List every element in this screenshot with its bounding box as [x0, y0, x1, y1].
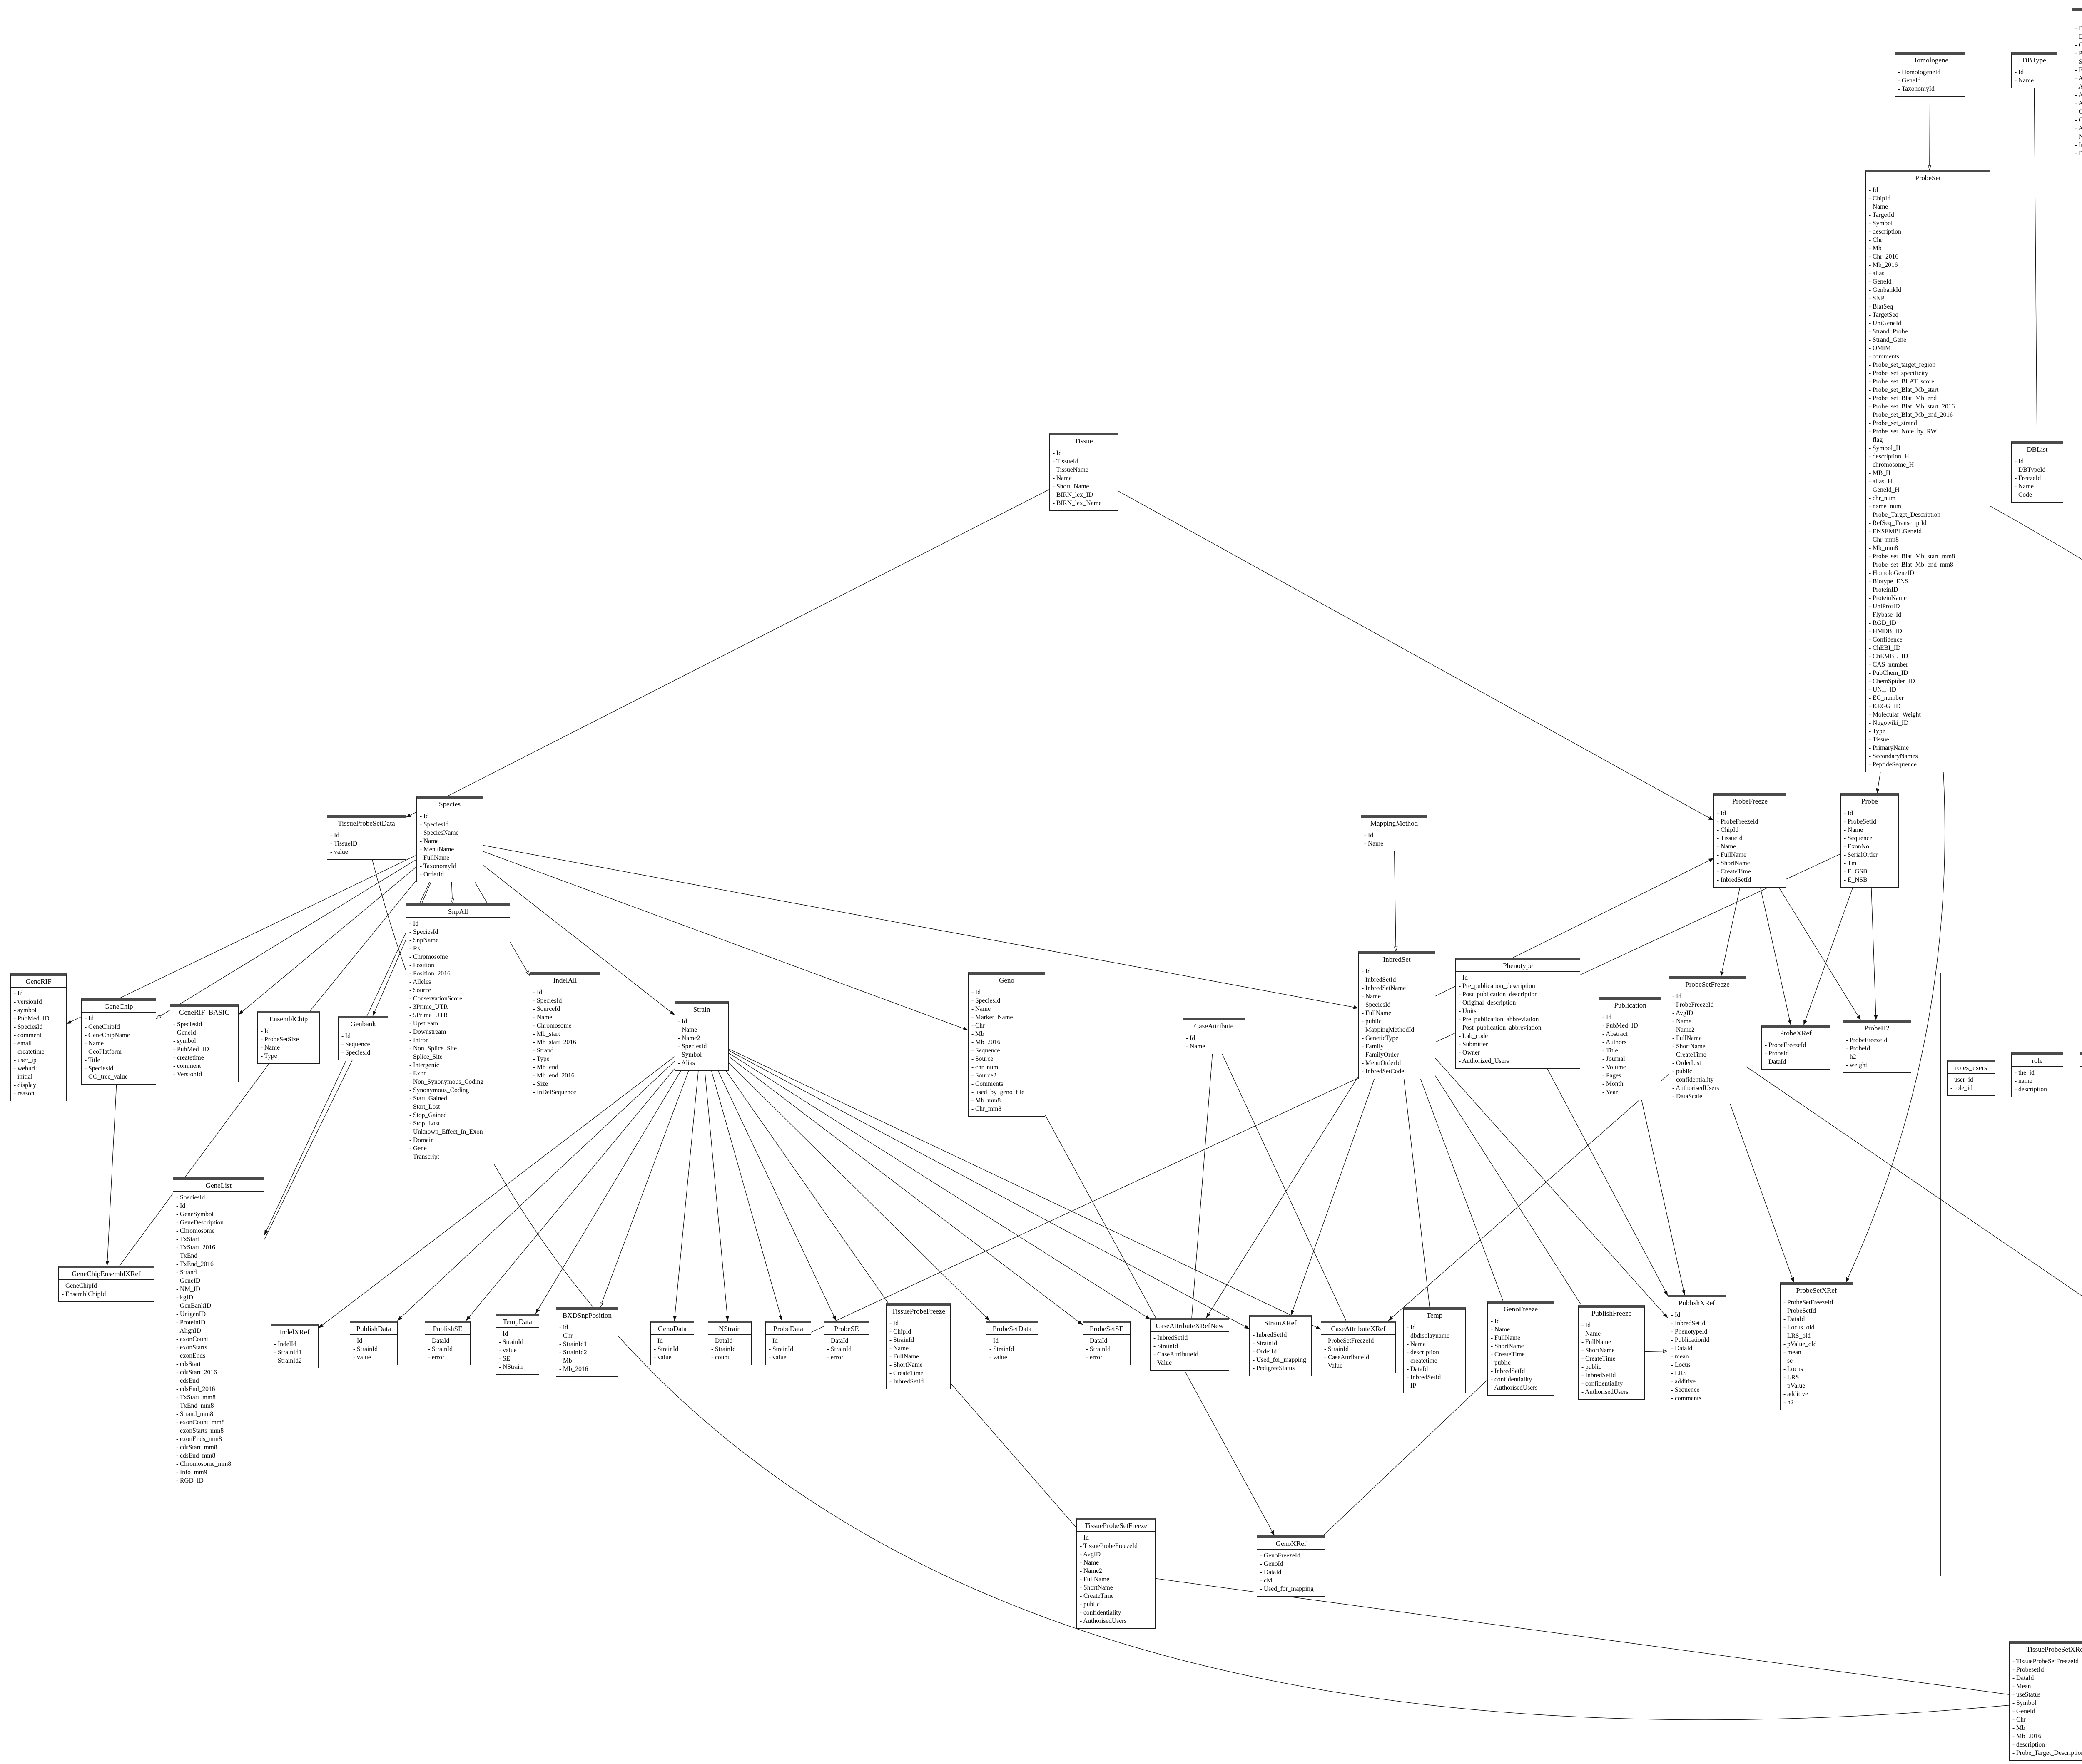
table-DBList: DBList- Id- DBTypeId- FreezeId- Name- Co…: [2011, 441, 2063, 503]
field-list: - InbredSetId- StrainId- CaseAttributeId…: [1151, 1332, 1229, 1370]
table-roles_users: roles_users- user_id- role_id: [1947, 1060, 1995, 1096]
field-row: - FullName: [420, 854, 481, 862]
field-row: - Info_mm9: [176, 1468, 262, 1477]
field-row: - SpeciesId: [14, 1023, 65, 1031]
field-list: - Id- dbdisplayname- Name- description- …: [1404, 1321, 1465, 1393]
field-row: - StrainId: [989, 1345, 1036, 1353]
field-row: - OrderList: [1672, 1059, 1744, 1067]
field-row: - Probe_set_Blat_Mb_start_2016: [1869, 403, 1988, 411]
field-row: - Intergenic: [409, 1061, 508, 1070]
field-row: - confidentiality: [1080, 1609, 1153, 1617]
field-list: - Id- StrainId- value: [766, 1335, 811, 1365]
field-row: - Locus: [1783, 1365, 1851, 1373]
field-row: - IndelId: [274, 1340, 316, 1349]
field-list: - Id- Name- FullName- ShortName- CreateT…: [1579, 1319, 1644, 1399]
field-row: - Id: [261, 1027, 318, 1035]
edge-Probe-ProbeXRef: [1804, 888, 1853, 1025]
field-row: - StrainId: [711, 1345, 750, 1353]
field-row: - cdsEnd_2016: [176, 1385, 262, 1393]
field-row: - Name: [889, 1344, 949, 1353]
field-row: - GeneId: [1869, 278, 1988, 286]
field-row: - weburl: [14, 1065, 65, 1073]
edge-ProbeSet-Probe: [1877, 772, 1880, 793]
field-row: - Mb_end: [533, 1063, 598, 1072]
field-row: - Gene: [409, 1144, 508, 1153]
table-Geno: Geno- Id- SpeciesId- Name- Marker_Name- …: [968, 972, 1045, 1117]
field-row: - Name: [1581, 1330, 1643, 1338]
field-row: - Month: [1602, 1080, 1659, 1088]
table-MappingMethod: MappingMethod- Id- Name: [1361, 815, 1427, 851]
field-row: - id: [559, 1324, 616, 1332]
table-title: ProbeXRef: [1762, 1028, 1830, 1039]
table-Probe: Probe- Id- ProbeSetId- Name- Sequence- E…: [1840, 793, 1899, 888]
field-row: - Name: [420, 837, 481, 846]
field-row: - StrainId: [1253, 1339, 1310, 1348]
edge-InbredSet-Temp: [1404, 1079, 1430, 1307]
field-row: - count: [711, 1353, 750, 1362]
field-row: - Id: [971, 988, 1043, 997]
field-row: - Nugowiki_ID: [1869, 719, 1988, 727]
field-row: - CAS_number: [1869, 661, 1988, 669]
table-GeneList: GeneList- SpeciesId- Id- GeneSymbol- Gen…: [173, 1177, 264, 1488]
field-row: - LRS: [1783, 1373, 1851, 1382]
field-row: - Name: [1844, 826, 1897, 834]
table-title: Geno: [969, 975, 1045, 986]
field-row: - Size: [533, 1080, 598, 1088]
table-title: ProbeFreeze: [1714, 796, 1786, 807]
field-row: - StrainId: [654, 1345, 692, 1353]
field-row: - DatasetName: [2075, 33, 2082, 41]
table-title: StrainXRef: [1250, 1317, 1311, 1329]
field-row: - TxStart_2016: [176, 1244, 262, 1252]
field-list: - Id- GeneChipId- GeneChipName- Name- Ge…: [82, 1013, 156, 1084]
table-title: ProbeH2: [1843, 1023, 1911, 1034]
field-row: - InbredSetId: [1362, 976, 1433, 984]
table-ProbeFreeze: ProbeFreeze- Id- ProbeFreezeId- ChipId- …: [1713, 793, 1786, 888]
table-title: PublishXRef: [1668, 1297, 1726, 1309]
field-row: - InvestigatorId: [2075, 141, 2082, 149]
field-row: - UniGeneId: [1869, 319, 1988, 328]
field-row: - ChemSpider_ID: [1869, 677, 1988, 686]
field-row: - ShortName: [1672, 1042, 1744, 1051]
field-row: - GeneChipId: [85, 1023, 154, 1031]
field-row: - SecondaryNames: [1869, 752, 1988, 761]
field-list: - Id- InbredSetId- InbredSetName- Name- …: [1359, 965, 1435, 1079]
field-row: - ShortName: [1491, 1342, 1552, 1351]
field-row: - PeptideSequence: [1869, 761, 1988, 769]
field-row: - public: [1080, 1600, 1153, 1609]
field-row: - AvgID: [1672, 1009, 1744, 1018]
field-row: - Stop_Gained: [409, 1111, 508, 1120]
field-row: - Journal: [1602, 1055, 1659, 1063]
field-row: - TissueID: [330, 840, 404, 848]
field-row: - Chromosome: [533, 1022, 598, 1030]
field-row: - user_id: [1950, 1076, 1993, 1084]
table-ProbeSetData: ProbeSetData- Id- StrainId- value: [986, 1321, 1038, 1365]
field-row: - InbredSetId: [1153, 1334, 1227, 1342]
field-row: - Pre_publication_description: [1459, 982, 1578, 990]
table-title: EnsemblChip: [258, 1013, 319, 1025]
field-row: - DataScale: [1672, 1092, 1744, 1101]
field-row: - ShortName: [889, 1361, 949, 1369]
field-row: - DataId: [1783, 1315, 1851, 1324]
field-row: - flag: [1869, 436, 1988, 444]
table-Publication: Publication- Id- PubMed_ID- Abstract- Au…: [1599, 997, 1661, 1100]
field-row: - ProteinID: [176, 1319, 262, 1327]
field-row: - Locus: [1671, 1361, 1724, 1369]
field-row: - Id: [499, 1330, 537, 1338]
field-row: - mean: [1783, 1349, 1851, 1357]
table-ProbeH2: ProbeH2- ProbeFreezeId- ProbeId- h2- wei…: [1843, 1020, 1911, 1073]
field-row: - Start_Lost: [409, 1103, 508, 1111]
field-row: - error: [428, 1353, 468, 1362]
field-row: - CreateTime: [1717, 868, 1784, 876]
table-title: TissueProbeSetFreeze: [1077, 1520, 1155, 1532]
field-row: - h2: [1783, 1398, 1851, 1407]
field-row: - Probe_Target_Description: [2012, 1749, 2082, 1757]
field-row: - GeneticType: [1362, 1034, 1433, 1042]
field-row: - Mb_mm8: [1869, 544, 1988, 552]
table-TissueProbeSetXRef: TissueProbeSetXRef- TissueProbeSetFreeze…: [2009, 1641, 2082, 1761]
edge-InbredSet-StrainXRef: [1291, 1079, 1374, 1315]
field-row: - ProbeFreezeId: [1765, 1041, 1828, 1050]
field-row: - Mb_2016: [971, 1038, 1043, 1047]
field-row: - Probe_set_BLAT_score: [1869, 378, 1988, 386]
field-row: - Mb_start: [533, 1030, 598, 1038]
field-row: - the_id: [2015, 1069, 2061, 1077]
field-row: - Name: [1364, 840, 1425, 848]
field-row: - GeneId: [2012, 1707, 2082, 1716]
edge-Tissue-TissueProbeSetData: [406, 490, 1049, 818]
field-row: - Family: [1362, 1042, 1433, 1051]
field-row: - Id: [409, 920, 508, 928]
field-list: - Id- InbredSetId- PhenotypeId- Publicat…: [1668, 1309, 1726, 1406]
field-row: - Name: [1869, 203, 1988, 211]
field-row: - TxEnd: [176, 1252, 262, 1260]
field-row: - SpeciesId: [176, 1194, 262, 1202]
field-list: - TableField- Foreign_Key- Annotation: [2080, 1067, 2082, 1097]
edge-ProbeFreeze-ProbeXRef: [1761, 888, 1791, 1025]
field-list: - user_id- role_id: [1948, 1074, 1995, 1095]
table-title: DBType: [2012, 55, 2057, 66]
table-title: GeneRIF_BASIC: [170, 1007, 238, 1018]
field-row: - HMDB_ID: [1869, 627, 1988, 636]
field-row: - Id: [769, 1337, 809, 1345]
field-row: - MB_H: [1869, 469, 1988, 478]
field-row: - useStatus: [2012, 1691, 2082, 1699]
field-list: - Id- StrainId- value: [986, 1335, 1038, 1365]
field-row: - GeneId: [173, 1029, 237, 1037]
field-row: - InbredSetId: [1407, 1373, 1464, 1382]
field-row: - StrainId: [1086, 1345, 1128, 1353]
field-row: - Chr: [559, 1332, 616, 1340]
field-row: - Probe_set_Blat_Mb_end_2016: [1869, 411, 1988, 419]
field-row: - Name: [1407, 1340, 1464, 1349]
table-title: TissueProbeFreeze: [887, 1306, 950, 1317]
field-row: - Chr: [971, 1022, 1043, 1030]
field-row: - versionId: [14, 998, 65, 1006]
field-row: - Type: [533, 1055, 598, 1063]
field-row: - Original_description: [1459, 999, 1578, 1007]
field-row: - symbol: [173, 1037, 237, 1045]
field-row: - PrimaryName: [1869, 744, 1988, 752]
field-row: - Id: [85, 1015, 154, 1023]
field-row: - TissueProbeSetFreezeId: [2012, 1657, 2082, 1666]
field-row: - name_num: [1869, 503, 1988, 511]
field-row: - Id: [1581, 1321, 1643, 1330]
field-row: - ProbeSetSize: [261, 1035, 318, 1044]
table-ProbeSet: ProbeSet- Id- ChipId- Name- TargetId- Sy…: [1865, 170, 1990, 772]
field-row: - Id: [1491, 1317, 1552, 1326]
field-row: - public: [1491, 1359, 1552, 1367]
table-title: Phenotype: [1456, 960, 1580, 972]
field-row: - exonCount_mm8: [176, 1418, 262, 1427]
field-row: - reason: [14, 1090, 65, 1098]
field-row: - DataId: [1407, 1365, 1464, 1373]
field-row: - alias: [1869, 269, 1988, 278]
field-row: - E_GSB: [1844, 868, 1897, 876]
field-row: - Id: [14, 990, 65, 998]
field-row: - Id: [2015, 68, 2055, 77]
field-row: - additive: [1671, 1378, 1724, 1386]
table-title: ProbeSetData: [986, 1323, 1038, 1335]
field-row: - Authorized_Users: [1459, 1057, 1578, 1065]
field-row: - ChipId: [1869, 194, 1988, 203]
field-list: - Id- PubMed_ID- Abstract- Authors- Titl…: [1599, 1011, 1661, 1100]
field-row: - GeneChipId: [62, 1282, 152, 1290]
field-list: - Id- Name: [2012, 66, 2057, 88]
field-row: - Tissue: [1869, 736, 1988, 744]
table-TissueProbeSetFreeze: TissueProbeSetFreeze- Id- TissueProbeFre…: [1076, 1518, 1156, 1629]
field-row: - public: [1362, 1018, 1433, 1026]
field-row: - Symbol: [678, 1051, 727, 1059]
field-row: - ProbesetId: [2012, 1666, 2082, 1674]
table-title: PublishSE: [425, 1323, 470, 1335]
field-row: - Name: [533, 1013, 598, 1022]
field-row: - value: [769, 1353, 809, 1362]
field-row: - createtime: [173, 1054, 237, 1062]
field-row: - mean: [1671, 1353, 1724, 1361]
field-row: - Value: [1324, 1362, 1394, 1370]
field-row: - Id: [654, 1337, 692, 1345]
field-row: - LRS_old: [1783, 1332, 1851, 1340]
field-row: - FullName: [1717, 851, 1784, 859]
edge-Strain-TissueProbeFreeze: [726, 1071, 888, 1303]
field-row: - DataId: [2012, 1674, 2082, 1682]
field-row: - Tm: [1844, 859, 1897, 868]
field-row: - Notes: [2075, 133, 2082, 141]
edge-Strain-ProbeSetData: [729, 1063, 989, 1321]
table-ProbeSetSE: ProbeSetSE- DataId- StrainId- error: [1083, 1321, 1131, 1365]
field-row: - EC_number: [1869, 694, 1988, 702]
table-GenoFreeze: GenoFreeze- Id- Name- FullName- ShortNam…: [1487, 1301, 1554, 1396]
field-row: - HomoloGeneID: [1869, 569, 1988, 577]
edge-Tissue-ProbeFreeze: [1118, 491, 1713, 820]
field-row: - Molecular_Weight: [1869, 711, 1988, 719]
field-row: - cdsStart_2016: [176, 1368, 262, 1377]
edge-DBType-DBList: [2034, 88, 2037, 441]
field-row: - EnsemblChipId: [62, 1290, 152, 1299]
field-row: - SpeciesId: [85, 1065, 154, 1073]
field-list: - Id- SpeciesId- SourceId- Name- Chromos…: [530, 986, 600, 1100]
field-row: - Citation: [2075, 116, 2082, 124]
field-list: - DataId- StrainId- error: [824, 1335, 869, 1365]
field-list: - DataId- StrainId- count: [708, 1335, 751, 1365]
field-row: - Id: [341, 1032, 386, 1040]
edge-Strain-ProbeSE: [718, 1071, 836, 1321]
field-row: - GeneId_H: [1869, 486, 1988, 494]
field-row: - Symbol: [1869, 219, 1988, 228]
table-title: PublishData: [350, 1323, 397, 1335]
edge-ProbeSetFreeze-ProbeSetXRef: [1730, 1104, 1794, 1282]
field-row: - Authors: [1602, 1038, 1659, 1047]
field-row: - Units: [1459, 1007, 1578, 1015]
field-list: - Id- StrainId- value- SE- NStrain: [496, 1328, 539, 1374]
edge-Publication-PublishXRef: [1641, 1100, 1684, 1295]
table-CaseAttributeXRefNew: CaseAttributeXRefNew- InbredSetId- Strai…: [1150, 1318, 1229, 1371]
field-row: - TaxonomyId: [420, 862, 481, 871]
field-list: - Id- Sequence- SpeciesId: [339, 1030, 388, 1060]
field-row: - error: [827, 1353, 867, 1362]
field-row: - Sequence: [971, 1047, 1043, 1055]
field-row: - Position_2016: [409, 970, 508, 978]
field-list: - DataId- StrainId- error: [1083, 1335, 1130, 1365]
field-row: - StrainId1: [274, 1349, 316, 1357]
field-row: - exonEnds: [176, 1352, 262, 1360]
field-list: - GeneChipId- EnsemblChipId: [59, 1280, 154, 1301]
field-row: - Probe_set_specificity: [1869, 369, 1988, 378]
field-list: - Id- SpeciesId- SpeciesName- Name- Menu…: [417, 810, 483, 882]
table-BXDSnpPosition: BXDSnpPosition- id- Chr- StrainId1- Stra…: [556, 1307, 618, 1377]
field-row: - Id: [1602, 1013, 1659, 1022]
edge-ProbeSetFreeze-CaseAttributeXRef: [1388, 1074, 1669, 1321]
field-row: - PhenotypeId: [1671, 1328, 1724, 1336]
edge-InbredSet-GenoFreeze: [1421, 1079, 1503, 1301]
field-row: - StrainId: [889, 1336, 949, 1344]
field-row: - Id: [1717, 809, 1784, 818]
field-row: - Marker_Name: [971, 1013, 1043, 1022]
edge-Homologene-ProbeSet: [1930, 97, 1930, 170]
field-row: - GenBankID: [176, 1302, 262, 1310]
field-row: - Unknown_Effect_In_Exon: [409, 1128, 508, 1136]
field-row: - exonCount: [176, 1335, 262, 1344]
table-title: DBList: [2012, 444, 2063, 455]
edge-GenoFreeze-GenoXRef: [1323, 1380, 1487, 1535]
field-row: - Title: [1602, 1047, 1659, 1055]
table-PublishSE: PublishSE- DataId- StrainId- error: [425, 1321, 471, 1365]
table-title: ProbeSE: [824, 1323, 869, 1335]
field-row: - Code: [2015, 491, 2061, 499]
field-row: - Start_Gained: [409, 1095, 508, 1103]
field-list: - Id- ChipId- StrainId- Name- FullName- …: [887, 1317, 950, 1389]
field-row: - IP: [1407, 1382, 1464, 1390]
edge-Strain-CaseAttributeXRefNew: [729, 1053, 1150, 1319]
field-row: - Strand_mm8: [176, 1410, 262, 1418]
field-row: - Id: [2015, 458, 2061, 466]
table-Phenotype: Phenotype- Id- Pre_publication_descripti…: [1455, 958, 1580, 1069]
field-row: - TxStart_mm8: [176, 1393, 262, 1402]
table-EnsemblChip: EnsemblChip- Id- ProbeSetSize- Name- Typ…: [257, 1011, 320, 1064]
field-row: - value: [330, 848, 404, 856]
field-row: - InDelSequence: [533, 1088, 598, 1097]
field-row: - GeoPlatform: [85, 1048, 154, 1056]
field-list: - Id- Name- FullName- ShortName- CreateT…: [1488, 1315, 1554, 1395]
table-GeneChip: GeneChip- Id- GeneChipId- GeneChipName- …: [81, 998, 156, 1085]
field-list: - Id- DBTypeId- FreezeId- Name- Code: [2012, 455, 2063, 502]
field-row: - TxEnd_mm8: [176, 1402, 262, 1410]
field-row: - Mb: [2012, 1724, 2082, 1732]
field-row: - StrainId: [1153, 1342, 1227, 1351]
field-row: - ProbeId: [1846, 1045, 1909, 1053]
schema-diagram: Others Homologene- HomologeneId- GeneId-…: [0, 0, 2082, 1764]
field-row: - Alleles: [409, 978, 508, 986]
field-row: - alias_H: [1869, 478, 1988, 486]
field-row: - description: [1869, 228, 1988, 236]
field-row: - OrderId: [1253, 1348, 1310, 1356]
table-GeneRIF: GeneRIF- Id- versionId- symbol- PubMed_I…: [10, 973, 67, 1101]
field-row: - FreezeId: [2015, 474, 2061, 483]
table-title: PublishFreeze: [1579, 1308, 1644, 1319]
field-row: - cdsEnd: [176, 1377, 262, 1385]
field-row: - KEGG_ID: [1869, 702, 1988, 711]
field-row: - user_ip: [14, 1056, 65, 1065]
field-row: - Name: [85, 1040, 154, 1048]
field-row: - StrainId: [428, 1345, 468, 1353]
table-title: GeneRIF: [11, 976, 66, 988]
field-row: - Synonymous_Coding: [409, 1086, 508, 1095]
table-GenoXRef: GenoXRef- GenoFreezeId- GenoId- DataId- …: [1257, 1535, 1325, 1597]
field-row: - Comments: [971, 1080, 1043, 1088]
table-PublishXRef: PublishXRef- Id- InbredSetId- PhenotypeI…: [1668, 1295, 1726, 1406]
field-list: - HomologeneId- GeneId- TaxonomyId: [1895, 66, 1965, 96]
field-row: - public: [1672, 1067, 1744, 1076]
edge-Genbank-GeneList: [264, 1060, 352, 1239]
table-SnpAll: SnpAll- Id- SpeciesId- SnpName- Rs- Chro…: [406, 903, 510, 1164]
field-row: - confidentiality: [1491, 1376, 1552, 1384]
field-row: - StrainId2: [559, 1349, 616, 1357]
field-row: - ProbeSetId: [1844, 818, 1897, 826]
field-row: - Probe_set_strand: [1869, 419, 1988, 428]
field-row: - GeneChipName: [85, 1031, 154, 1040]
table-NStrain: NStrain- DataId- StrainId- count: [708, 1321, 752, 1365]
field-row: - Probe_set_Blat_Mb_end_mm8: [1869, 561, 1988, 569]
field-row: - Position: [409, 961, 508, 970]
field-list: - DataId- StrainId- error: [425, 1335, 470, 1365]
field-row: - AuthorisedUsers: [1581, 1388, 1643, 1396]
field-row: - ENSEMBLGeneId: [1869, 527, 1988, 536]
field-row: - TissueId: [1053, 458, 1116, 466]
edge-Strain-NStrain: [705, 1071, 728, 1321]
field-row: - Strand: [533, 1047, 598, 1055]
field-row: - DataId: [1086, 1337, 1128, 1345]
table-Tissue: Tissue- Id- TissueId- TissueName- Name- …: [1049, 433, 1118, 511]
field-row: - Id: [176, 1202, 262, 1210]
edge-ProbeFreeze-ProbeH2: [1779, 888, 1860, 1020]
edge-Probe-ProbeH2: [1871, 888, 1876, 1020]
field-row: - Id: [353, 1337, 396, 1345]
field-row: - StrainId: [1324, 1345, 1394, 1353]
field-list: - Id- TissueID- value: [327, 829, 406, 859]
field-row: - TissueProbeFreezeId: [1080, 1542, 1153, 1550]
field-row: - Chromosome: [409, 953, 508, 961]
field-row: - cdsStart: [176, 1360, 262, 1368]
field-row: - AlignID: [176, 1327, 262, 1335]
field-row: - DatasetStatusId: [2075, 149, 2082, 158]
field-row: - Strand_Gene: [1869, 336, 1988, 344]
field-list: - Id- StrainId- value: [350, 1335, 397, 1365]
field-row: - Short_Name: [1053, 483, 1116, 491]
field-list: - Id- ChipId- Name- TargetId- Symbol- de…: [1866, 184, 1990, 772]
